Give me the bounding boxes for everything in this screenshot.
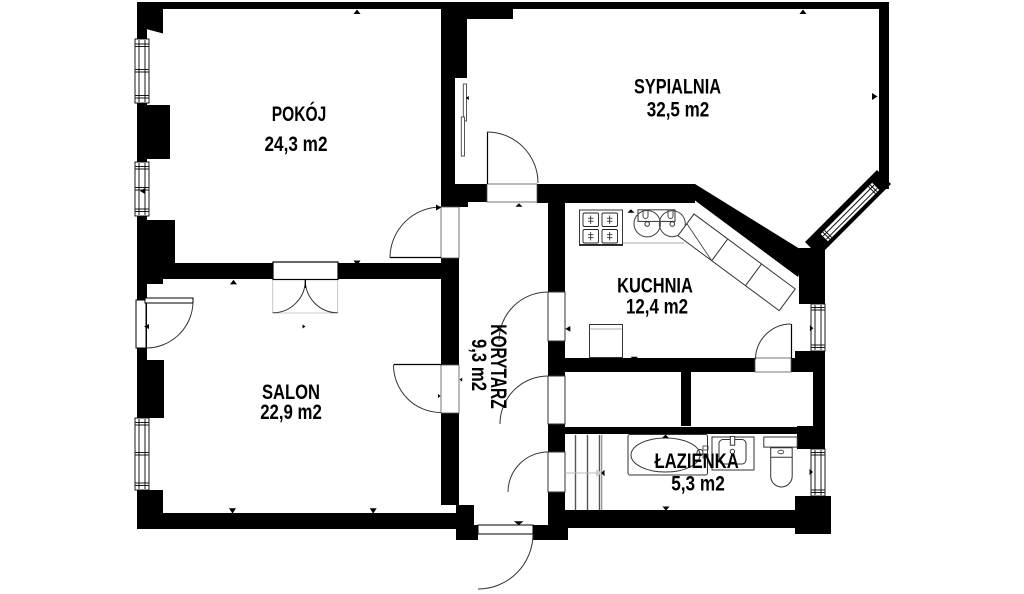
svg-text:32,5 m2: 32,5 m2 — [647, 99, 710, 122]
svg-text:POKÓJ: POKÓJ — [272, 102, 327, 126]
svg-text:5,3 m2: 5,3 m2 — [671, 473, 725, 496]
svg-text:22,9 m2: 22,9 m2 — [260, 401, 322, 424]
svg-text:12,4 m2: 12,4 m2 — [626, 296, 688, 319]
svg-text:ŁAZIENKA: ŁAZIENKA — [654, 450, 738, 473]
svg-text:9,3 m2: 9,3 m2 — [467, 339, 490, 391]
svg-text:24,3 m2: 24,3 m2 — [265, 133, 328, 156]
svg-text:SYPIALNIA: SYPIALNIA — [634, 76, 721, 99]
svg-text:KUCHNIA: KUCHNIA — [617, 275, 693, 298]
